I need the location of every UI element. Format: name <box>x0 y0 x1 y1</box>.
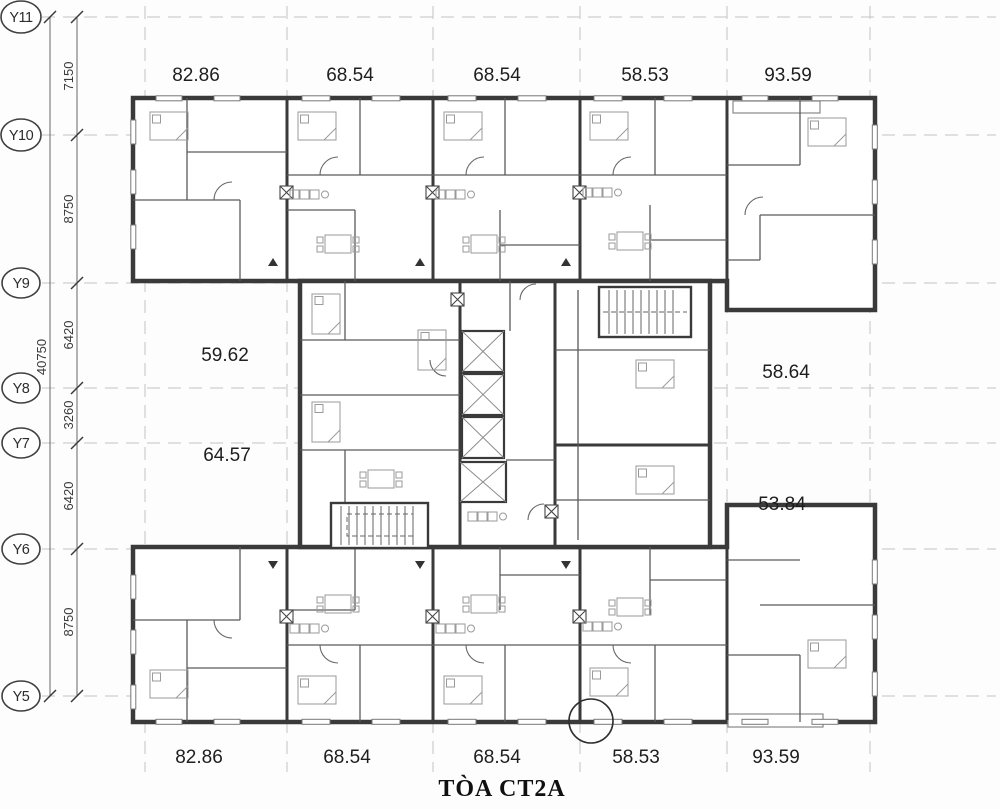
grid-bubble-y11: Y11 <box>1 1 41 33</box>
area-top-4: 58.53 <box>621 65 669 86</box>
svg-text:Y10: Y10 <box>9 128 34 144</box>
grid-bubble-y7: Y7 <box>2 428 40 458</box>
area-top-1: 82.86 <box>172 65 220 86</box>
elevator-shafts <box>460 331 506 502</box>
dim-overall-40750: 40750 <box>34 339 49 375</box>
dim-6420a: 6420 <box>61 321 76 350</box>
svg-text:Y6: Y6 <box>13 542 30 558</box>
dim-8750b: 8750 <box>61 608 76 637</box>
dimension-lines <box>44 11 83 702</box>
svg-text:Y5: Y5 <box>13 689 30 705</box>
area-mid-right-1: 58.64 <box>762 362 810 383</box>
svg-text:Y11: Y11 <box>9 10 33 26</box>
dim-7150: 7150 <box>61 62 76 91</box>
grid-bubble-y5: Y5 <box>2 681 40 711</box>
plan-title: TÒA CT2A <box>438 775 565 802</box>
staircase-top <box>599 287 691 337</box>
dim-3260: 3260 <box>61 401 76 430</box>
dim-8750a: 8750 <box>61 195 76 224</box>
area-bottom-1: 82.86 <box>175 747 223 768</box>
floor-plan-canvas: 7150 8750 6420 3260 6420 8750 40750 Y11 … <box>0 0 1000 809</box>
grid-bubble-y6: Y6 <box>2 534 40 564</box>
grid-bubble-y9: Y9 <box>2 268 40 298</box>
dim-6420b: 6420 <box>61 482 76 511</box>
area-top-2: 68.54 <box>326 65 374 86</box>
svg-text:Y9: Y9 <box>13 276 30 292</box>
grid-bubble-y8: Y8 <box>2 373 40 403</box>
svg-text:Y7: Y7 <box>13 436 30 452</box>
top-wing-outline <box>133 98 875 310</box>
building <box>131 96 878 727</box>
staircase-bottom <box>331 503 428 548</box>
grid-bubble-y10: Y10 <box>1 119 41 151</box>
area-bottom-2: 68.54 <box>323 747 371 768</box>
area-mid-right-2: 53.84 <box>758 494 806 515</box>
area-bottom-3: 68.54 <box>473 747 521 768</box>
area-top-3: 68.54 <box>473 65 521 86</box>
area-top-5: 93.59 <box>764 65 812 86</box>
area-bottom-5: 93.59 <box>752 747 800 768</box>
svg-text:Y8: Y8 <box>13 381 30 397</box>
floor-plan-drawing: 7150 8750 6420 3260 6420 8750 40750 Y11 … <box>0 0 1000 809</box>
area-bottom-4: 58.53 <box>612 747 660 768</box>
area-mid-left-1: 59.62 <box>201 345 249 366</box>
area-mid-left-2: 64.57 <box>203 445 251 466</box>
balcony-top-right <box>733 101 820 113</box>
